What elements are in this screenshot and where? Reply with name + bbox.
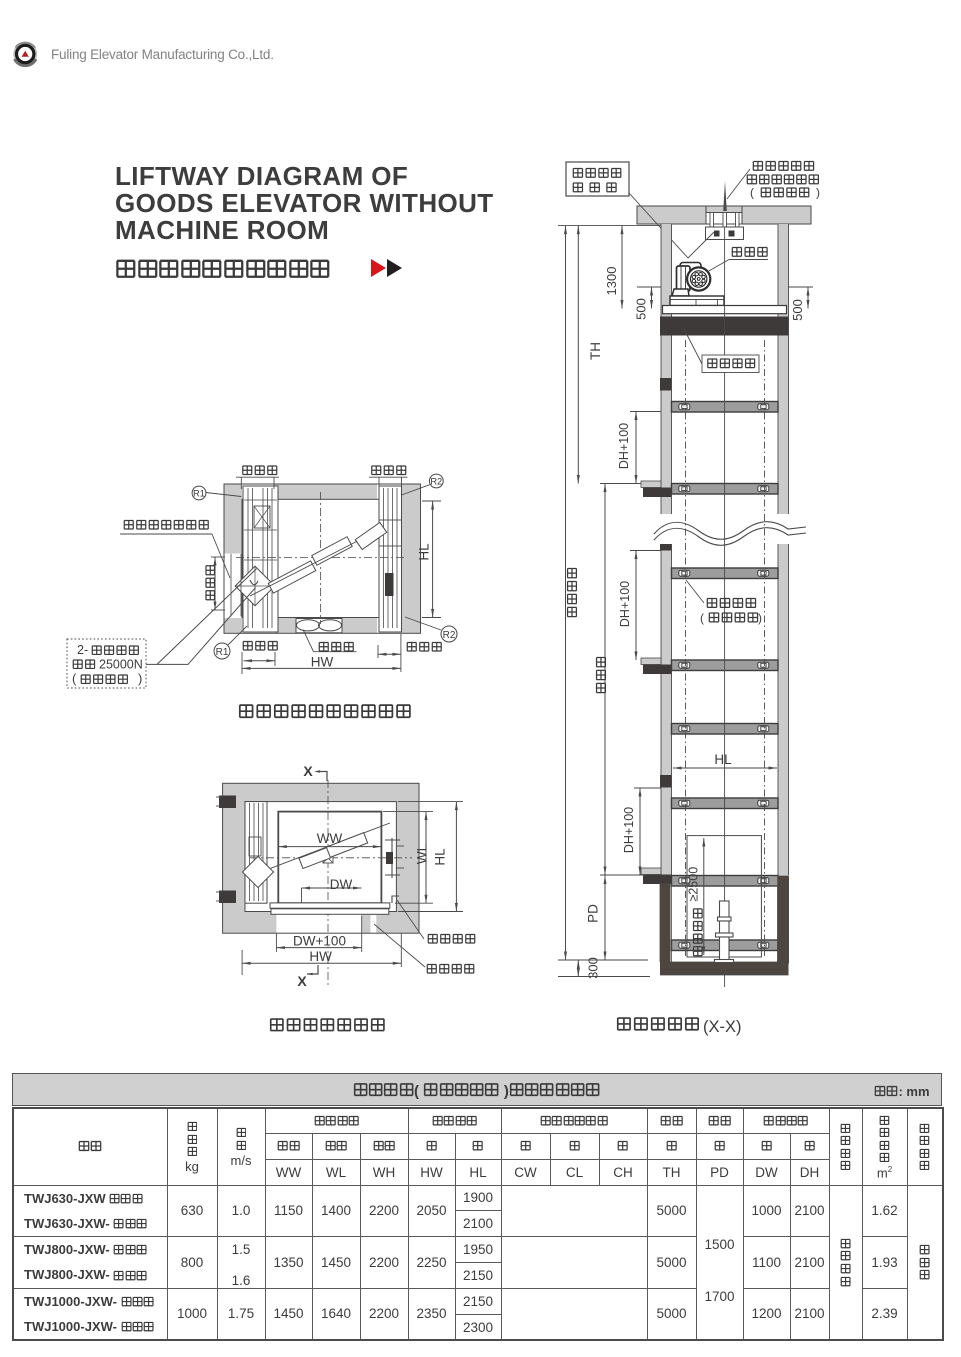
svg-text:HL: HL	[417, 543, 432, 561]
svg-text:(: (	[700, 611, 704, 625]
svg-text:HW: HW	[311, 655, 334, 670]
svg-text:500: 500	[790, 299, 805, 321]
svg-text:(: (	[72, 671, 77, 686]
svg-text:R2: R2	[443, 630, 456, 641]
svg-text:1300: 1300	[604, 267, 619, 296]
svg-text:X: X	[297, 973, 307, 989]
svg-text:HL: HL	[433, 848, 448, 866]
svg-text:R1: R1	[216, 647, 229, 658]
svg-text:(X-X): (X-X)	[703, 1018, 742, 1036]
svg-text:DH+100: DH+100	[618, 581, 632, 627]
svg-text:): )	[758, 611, 762, 625]
svg-text:HL: HL	[714, 752, 732, 767]
svg-text:500: 500	[634, 298, 649, 320]
svg-text:): )	[816, 186, 820, 200]
svg-text:PD: PD	[586, 904, 601, 923]
svg-text:DH+100: DH+100	[617, 423, 631, 469]
svg-text:25000N: 25000N	[99, 658, 143, 672]
svg-text:HW: HW	[309, 949, 332, 964]
svg-text:DW: DW	[330, 877, 353, 892]
svg-text:2-: 2-	[77, 643, 88, 657]
svg-text:R1: R1	[193, 489, 205, 499]
svg-text:): )	[138, 671, 142, 686]
svg-text:X: X	[303, 763, 313, 779]
svg-text:≥2500: ≥2500	[687, 867, 701, 902]
svg-text:(: (	[750, 186, 754, 200]
svg-text:DH+100: DH+100	[622, 807, 636, 853]
svg-text:DW+100: DW+100	[293, 934, 346, 949]
svg-text:TH: TH	[588, 342, 603, 360]
svg-text:WW: WW	[317, 831, 343, 846]
svg-text:WL: WL	[415, 843, 430, 864]
svg-text:300: 300	[586, 957, 601, 979]
svg-text:R2: R2	[430, 477, 442, 487]
